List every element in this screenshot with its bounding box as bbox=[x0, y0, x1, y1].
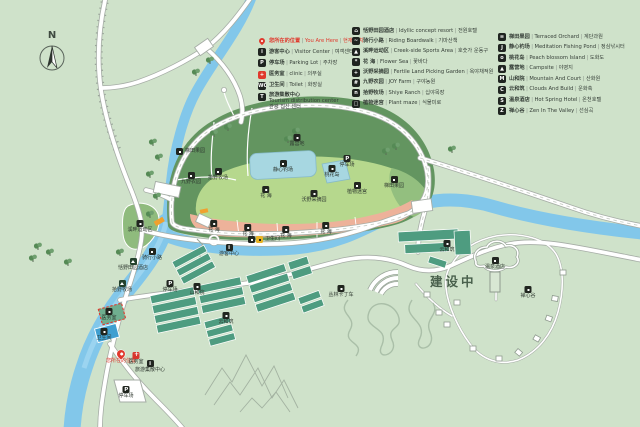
legend-text: 沃野采摘园|Fertile Land Picking Garden|옥야채적원 bbox=[363, 69, 493, 76]
spot-icon bbox=[337, 285, 344, 292]
legend-text: 九野农园|JOY Farm|구야농원 bbox=[363, 79, 435, 86]
map-label-spot: 温泉酒店 bbox=[485, 257, 505, 271]
clinic-icon bbox=[132, 352, 139, 359]
map-label-clinic: 医务室 bbox=[128, 352, 143, 366]
clouds-build-icon: C bbox=[498, 86, 506, 94]
map-label-spot: 骑行小路 bbox=[142, 248, 162, 262]
legend-item-zen-valley: Z禅心谷|Zen In The Valley|선심곡 bbox=[498, 107, 625, 115]
spot-icon bbox=[245, 224, 252, 231]
map-label-spot: 沃野采摘园 bbox=[301, 190, 326, 204]
lodge-icon bbox=[118, 280, 125, 287]
visitor-center-icon: i bbox=[258, 48, 266, 56]
map-label-text: 温泉酒店 bbox=[485, 265, 505, 271]
map-label-spot: 云和筑 bbox=[218, 312, 233, 326]
legend-column-1: ⌂恬野田园酒店|Idyllic concept resort|전원호텔~骑行小路… bbox=[352, 27, 493, 108]
legend-item-toilet: WC卫生间|Toilet|화장실 bbox=[258, 82, 364, 90]
legend-text: 露营地|Campsite|야영지 bbox=[509, 65, 573, 72]
map-label-text: 梯田果园 bbox=[185, 149, 205, 155]
legend-text-kr: 관광 집산 센터 bbox=[269, 105, 339, 110]
legend-text: 山和院|Mountain And Court|산화원 bbox=[509, 75, 600, 82]
toilet-icon bbox=[248, 236, 255, 243]
spot-icon bbox=[148, 248, 155, 255]
map-overlay: N 建设中 您所在的位置|You Are Here|현재 위치i游客中心|Vis… bbox=[0, 0, 640, 427]
spot-icon bbox=[214, 168, 221, 175]
map-label-pin: 您所在的位置 bbox=[106, 350, 136, 365]
legend-item-resort: ⌂恬野田园酒店|Idyllic concept resort|전원호텔 bbox=[352, 27, 493, 35]
map-label-text: 停车场 bbox=[118, 394, 133, 400]
map-label-text: 您所在的位置 bbox=[106, 359, 136, 365]
legend-text: 医务室|clinic|의무실 bbox=[269, 71, 322, 78]
joy-farm-icon: # bbox=[352, 79, 360, 87]
map-label-text: 停车场 bbox=[162, 288, 177, 294]
legend-text: 温泉酒店|Hot Spring Hotel|온천호텔 bbox=[509, 97, 601, 104]
mountain-court-icon: M bbox=[498, 75, 506, 83]
map-label-spot: 植物迷宫 bbox=[347, 182, 367, 196]
map-label-spot: 花 海 bbox=[260, 186, 272, 200]
hot-spring-icon: S bbox=[498, 97, 506, 105]
map-label-text: 游客中心 bbox=[219, 252, 239, 258]
legend-text: 梯田果园|Terraced Orchard|계단과원 bbox=[509, 33, 603, 40]
map-label-toilet: 卫生间 bbox=[248, 236, 280, 243]
spot-icon bbox=[105, 308, 112, 315]
toilet-icon: WC bbox=[258, 82, 266, 90]
legend-text: 恬野田园酒店|Idyllic concept resort|전원호텔 bbox=[363, 27, 477, 34]
spot-icon bbox=[390, 176, 397, 183]
legend-item-fishing-pond: J静心钓场|Meditation Fishing Pond|정심낚시터 bbox=[498, 44, 625, 52]
map-label-text: 九野农园 bbox=[181, 180, 201, 186]
spot-icon bbox=[293, 134, 300, 141]
legend-text: 禅心谷|Zen In The Valley|선심곡 bbox=[509, 107, 593, 114]
legend-text: 您所在的位置|You Are Here|현재 위치 bbox=[269, 37, 364, 44]
map-label-visitor: 旅游集散中心 bbox=[135, 360, 165, 374]
legend-column-2: ≡梯田果园|Terraced Orchard|계단과원J静心钓场|Meditat… bbox=[498, 33, 625, 115]
map-label-spot: 露营地 bbox=[289, 134, 304, 148]
parking-icon: P bbox=[258, 59, 266, 67]
map-label-text: 拾野牧场 bbox=[208, 176, 228, 182]
map-label-lodge: 拾野牧场 bbox=[112, 280, 132, 294]
legend-text: 桃花岛|Peach blossom Island|도화도 bbox=[509, 54, 604, 61]
spot-icon bbox=[310, 190, 317, 197]
legend-item-mountain-court: M山和院|Mountain And Court|산화원 bbox=[498, 75, 625, 83]
map-label-spot: 溪畔运动区 bbox=[127, 220, 152, 234]
map-label-spot: 梯田果园 bbox=[176, 148, 205, 155]
spot-icon bbox=[283, 226, 290, 233]
parking-icon bbox=[343, 155, 350, 162]
spot-icon bbox=[211, 220, 218, 227]
map-label-visitor: 游客中心 bbox=[219, 244, 239, 258]
map-label-text: 旅游集散中心 bbox=[135, 368, 165, 374]
legend-item-riding-boardwalk: ~骑行小路|Riding Boardwalk|기마산책 bbox=[352, 37, 493, 45]
map-label-spot: 禅心谷 bbox=[520, 286, 535, 300]
legend-item-clouds-build: C云和筑|Clouds And Build|운화축 bbox=[498, 86, 625, 94]
legend-item-clinic: +医务室|clinic|의무실 bbox=[258, 71, 364, 79]
spot-icon bbox=[524, 286, 531, 293]
ranch-icon: n bbox=[352, 89, 360, 97]
spot-icon bbox=[263, 186, 270, 193]
map-label-spot: 花 海 bbox=[242, 224, 254, 238]
map-label-text: 花 海 bbox=[280, 234, 292, 240]
map-label-text: 丛林卡丁车 bbox=[328, 293, 353, 299]
map-label-text: 骑行小路 bbox=[142, 256, 162, 262]
picking-garden-icon: + bbox=[352, 69, 360, 77]
map-label-text: 医务室 bbox=[128, 360, 143, 366]
legend-item-sports-area: ▲溪畔运动区|Creek-side Sports Area|호숫가 운동구 bbox=[352, 48, 493, 56]
under-construction-label: 建设中 bbox=[430, 271, 477, 290]
map-label-spot: 桃花岛 bbox=[324, 165, 339, 179]
riding-boardwalk-icon: ~ bbox=[352, 37, 360, 45]
map-label-lodge: 恬野田园酒店 bbox=[118, 258, 148, 272]
map-label-spot: 花 海 bbox=[320, 222, 332, 236]
map-label-text: 花 海 bbox=[208, 228, 220, 234]
map-label-text: 花 海 bbox=[242, 232, 254, 238]
parking-icon bbox=[122, 386, 129, 393]
map-label-spot: 九野农园 bbox=[181, 172, 201, 186]
spot-icon bbox=[328, 165, 335, 172]
map-label-text: 植物迷宫 bbox=[347, 190, 367, 196]
clinic-icon: + bbox=[258, 71, 266, 79]
map-label-spot: 山和院 bbox=[189, 283, 204, 297]
tourism-center-icon: T bbox=[258, 93, 266, 101]
map-label-text: 花 海 bbox=[320, 230, 332, 236]
map-label-text: 沃野采摘园 bbox=[301, 198, 326, 204]
pin-icon bbox=[258, 37, 266, 45]
map-label-text: 梯田果园 bbox=[384, 184, 404, 190]
map-label-parking: 停车场 bbox=[162, 280, 177, 294]
legend-text: 静心钓场|Meditation Fishing Pond|정심낚시터 bbox=[509, 44, 625, 51]
legend-item-joy-farm: #九野农园|JOY Farm|구야농원 bbox=[352, 79, 493, 87]
legend-column-0: 您所在的位置|You Are Here|현재 위치i游客中心|Visitor C… bbox=[258, 37, 364, 111]
legend-item-flower-sea: *花 海|Flower Sea|꽃바다 bbox=[352, 58, 493, 66]
map-label-text: 桃花岛 bbox=[324, 173, 339, 179]
campsite-icon: ▲ bbox=[498, 65, 506, 73]
map-label-text: 禅心谷 bbox=[520, 294, 535, 300]
scenic-map-canvas: N 建设中 您所在的位置|You Are Here|현재 위치i游客中心|Vis… bbox=[0, 0, 640, 427]
map-label-spot: 丛林卡丁车 bbox=[328, 285, 353, 299]
legend-text: 植物迷宫|Plant maze|식물미로 bbox=[363, 100, 441, 107]
map-label-text: 山和院 bbox=[189, 291, 204, 297]
map-label-text: 停车场 bbox=[339, 163, 354, 169]
legend-text: 云和筑|Clouds And Build|운화축 bbox=[509, 86, 592, 93]
map-label-text: 云和筑 bbox=[218, 320, 233, 326]
legend-text: 卫生间|Toilet|화장실 bbox=[269, 82, 322, 89]
map-label-text: 卫生间 bbox=[96, 336, 111, 342]
legend-item-ranch: n拾野牧场|Shiye Ranch|십야목장 bbox=[352, 89, 493, 97]
fishing-pond-icon: J bbox=[498, 44, 506, 52]
resort-icon: ⌂ bbox=[352, 27, 360, 35]
compass-north-label: N bbox=[48, 30, 56, 41]
spot-icon bbox=[353, 182, 360, 189]
legend-text: 骑行小路|Riding Boardwalk|기마산책 bbox=[363, 37, 457, 44]
legend-item-terraced-orchard: ≡梯田果园|Terraced Orchard|계단과원 bbox=[498, 33, 625, 41]
legend-item-campsite: ▲露营地|Campsite|야영지 bbox=[498, 65, 625, 73]
toilet-icon bbox=[256, 236, 263, 243]
legend-text: 停车场|Parking Lot|주차장 bbox=[269, 59, 337, 66]
map-label-text: 云和筑 bbox=[439, 248, 454, 254]
sports-area-icon: ▲ bbox=[352, 48, 360, 56]
legend-item-visitor-center: i游客中心|Visitor Center|여객센터 bbox=[258, 48, 364, 56]
map-label-parking: 停车场 bbox=[118, 386, 133, 400]
toilet-icon bbox=[248, 236, 263, 243]
spot-icon bbox=[100, 328, 107, 335]
spot-icon bbox=[279, 160, 286, 167]
legend-text: 溪畔运动区|Creek-side Sports Area|호숫가 운동구 bbox=[363, 48, 488, 55]
legend-item-picking-garden: +沃野采摘园|Fertile Land Picking Garden|옥야채적원 bbox=[352, 69, 493, 77]
legend-item-peach-island: o桃花岛|Peach blossom Island|도화도 bbox=[498, 54, 625, 62]
spot-icon bbox=[187, 172, 194, 179]
legend-text: 游客中心|Visitor Center|여객센터 bbox=[269, 48, 354, 55]
lodge-icon bbox=[129, 258, 136, 265]
spot-icon bbox=[222, 312, 229, 319]
map-label-spot: 云和筑 bbox=[439, 240, 454, 254]
you-are-here-pin-icon bbox=[115, 348, 126, 359]
map-label-spot: 花 海 bbox=[280, 226, 292, 240]
map-label-spot: 医务室 bbox=[101, 308, 116, 322]
legend-text: 花 海|Flower Sea|꽃바다 bbox=[363, 58, 428, 65]
map-label-spot: 卫生间 bbox=[96, 328, 111, 342]
zen-valley-icon: Z bbox=[498, 107, 506, 115]
flower-sea-icon: * bbox=[352, 58, 360, 66]
map-label-text: 医务室 bbox=[101, 316, 116, 322]
map-label-text: 花 海 bbox=[260, 194, 272, 200]
legend-item-tourism-center: T旅游集散中心Tourism distribution center관광 집산 … bbox=[258, 93, 364, 111]
map-label-text: 卫生间 bbox=[265, 237, 280, 243]
spot-icon bbox=[323, 222, 330, 229]
parking-icon bbox=[166, 280, 173, 287]
map-label-text: 静心钓场 bbox=[273, 168, 293, 174]
legend-text: 拾野牧场|Shiye Ranch|십야목장 bbox=[363, 89, 444, 96]
plant-maze-icon: □ bbox=[352, 100, 360, 108]
legend-item-plant-maze: □植物迷宫|Plant maze|식물미로 bbox=[352, 100, 493, 108]
legend-item-parking: P停车场|Parking Lot|주차장 bbox=[258, 59, 364, 67]
spot-icon bbox=[491, 257, 498, 264]
map-label-text: 恬野田园酒店 bbox=[118, 266, 148, 272]
spot-icon bbox=[176, 148, 183, 155]
legend-item-hot-spring: S温泉酒店|Hot Spring Hotel|온천호텔 bbox=[498, 97, 625, 105]
terraced-orchard-icon: ≡ bbox=[498, 33, 506, 41]
map-label-text: 露营地 bbox=[289, 142, 304, 148]
map-label-text: 溪畔运动区 bbox=[127, 228, 152, 234]
visitor-icon bbox=[146, 360, 153, 367]
map-label-parking: 停车场 bbox=[339, 155, 354, 169]
map-label-spot: 花 海 bbox=[208, 220, 220, 234]
map-label-spot: 拾野牧场 bbox=[208, 168, 228, 182]
spot-icon bbox=[443, 240, 450, 247]
map-label-text: 拾野牧场 bbox=[112, 288, 132, 294]
spot-icon bbox=[193, 283, 200, 290]
spot-icon bbox=[136, 220, 143, 227]
map-label-spot: 梯田果园 bbox=[384, 176, 404, 190]
map-label-spot: 静心钓场 bbox=[273, 160, 293, 174]
visitor-icon bbox=[225, 244, 232, 251]
legend-item-pin: 您所在的位置|You Are Here|현재 위치 bbox=[258, 37, 364, 45]
peach-island-icon: o bbox=[498, 54, 506, 62]
